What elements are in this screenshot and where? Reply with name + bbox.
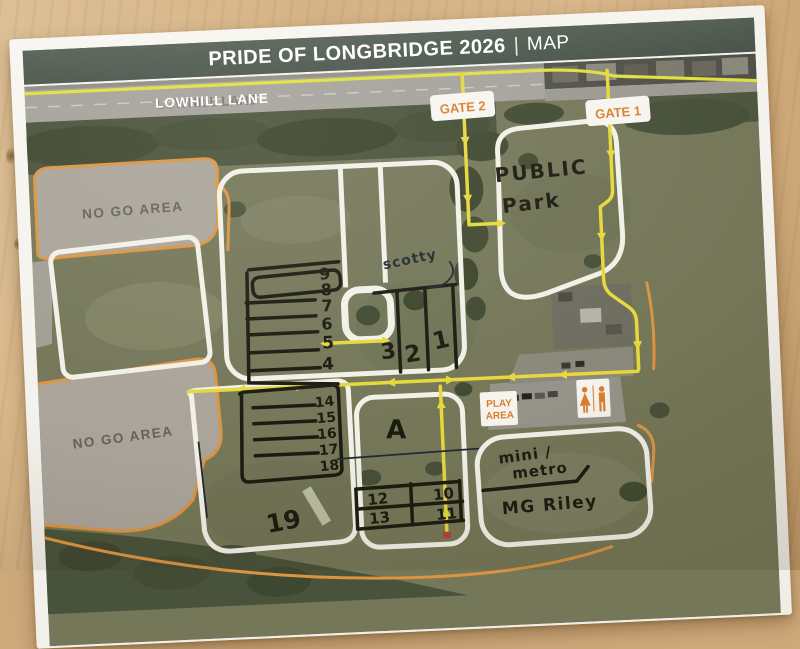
row-number-14: 14	[314, 393, 335, 411]
play-area-line1: PLAY	[486, 398, 513, 410]
row-number-15: 15	[316, 409, 337, 427]
grid-cell-11: 11	[435, 504, 458, 524]
row-number-18: 18	[319, 457, 340, 475]
printed-map-sheet: PRIDE OF LONGBRIDGE 2026 | MAP	[9, 5, 792, 649]
grid-cell-13: 13	[368, 508, 391, 528]
lane-number-3: 3	[379, 339, 397, 366]
toilet-sign	[576, 379, 611, 418]
row-number-5: 5	[322, 333, 335, 354]
route-end-marker	[443, 532, 451, 538]
row-number-16: 16	[317, 425, 338, 443]
play-area-line2: AREA	[485, 410, 514, 422]
play-area-sign: PLAY AREA	[480, 391, 519, 427]
row-number-7: 7	[321, 296, 333, 315]
area-a-label: A	[386, 415, 406, 445]
building	[580, 308, 602, 323]
row-number-4: 4	[322, 354, 335, 375]
grid-cell-12: 12	[366, 489, 389, 509]
grid-cell-10: 10	[432, 484, 455, 504]
title-suffix: MAP	[526, 32, 570, 56]
gate1-sign: GATE 1	[585, 95, 651, 126]
row-number-6: 6	[321, 314, 333, 333]
gate2-sign: GATE 2	[430, 90, 496, 121]
event-title: PRIDE OF LONGBRIDGE 2026	[208, 34, 506, 70]
title-separator: |	[513, 34, 519, 57]
farm-yard	[551, 283, 634, 349]
aerial-map: LOWHILL LANE LOWHILL LANE	[24, 54, 781, 647]
crossing-arrow-line	[328, 341, 382, 343]
row-number-17: 17	[318, 441, 339, 459]
